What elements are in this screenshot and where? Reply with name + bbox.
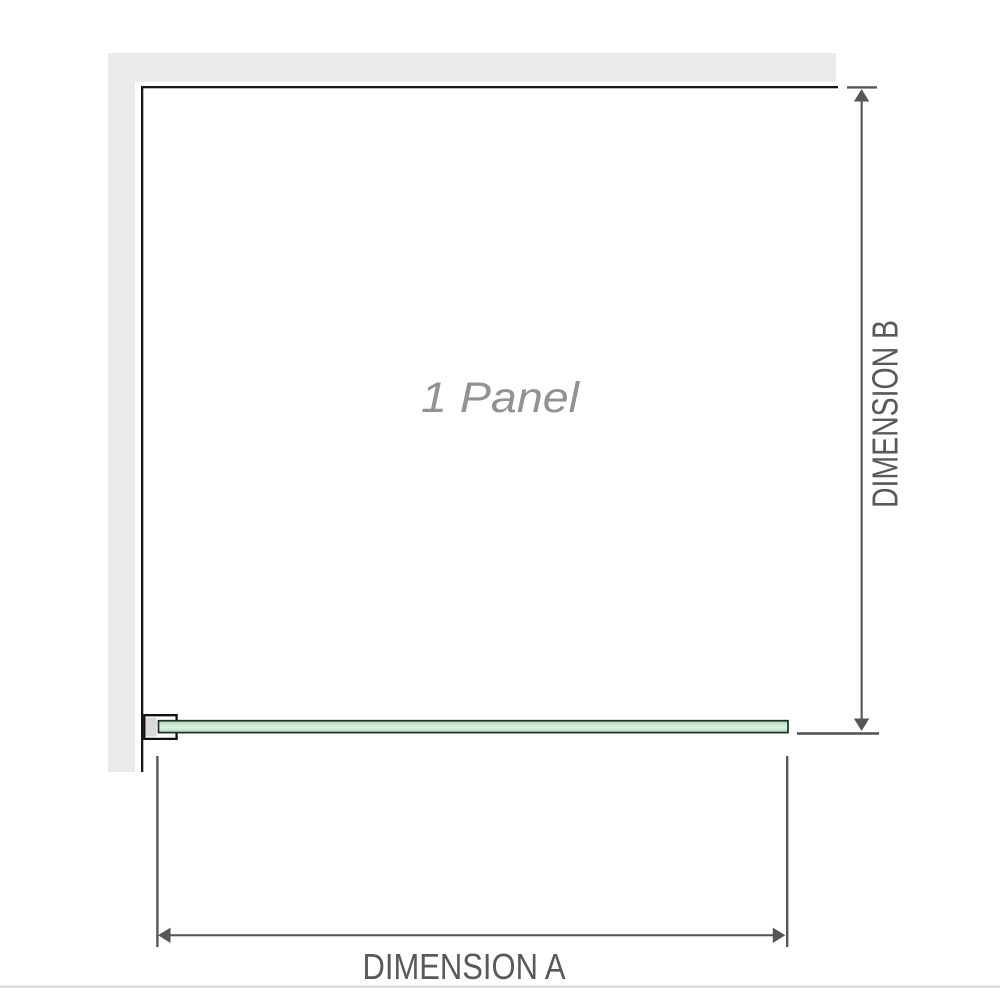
svg-text:1 Panel: 1 Panel xyxy=(421,374,581,422)
svg-text:DIMENSION A: DIMENSION A xyxy=(363,946,566,987)
svg-text:DIMENSION B: DIMENSION B xyxy=(865,320,906,508)
